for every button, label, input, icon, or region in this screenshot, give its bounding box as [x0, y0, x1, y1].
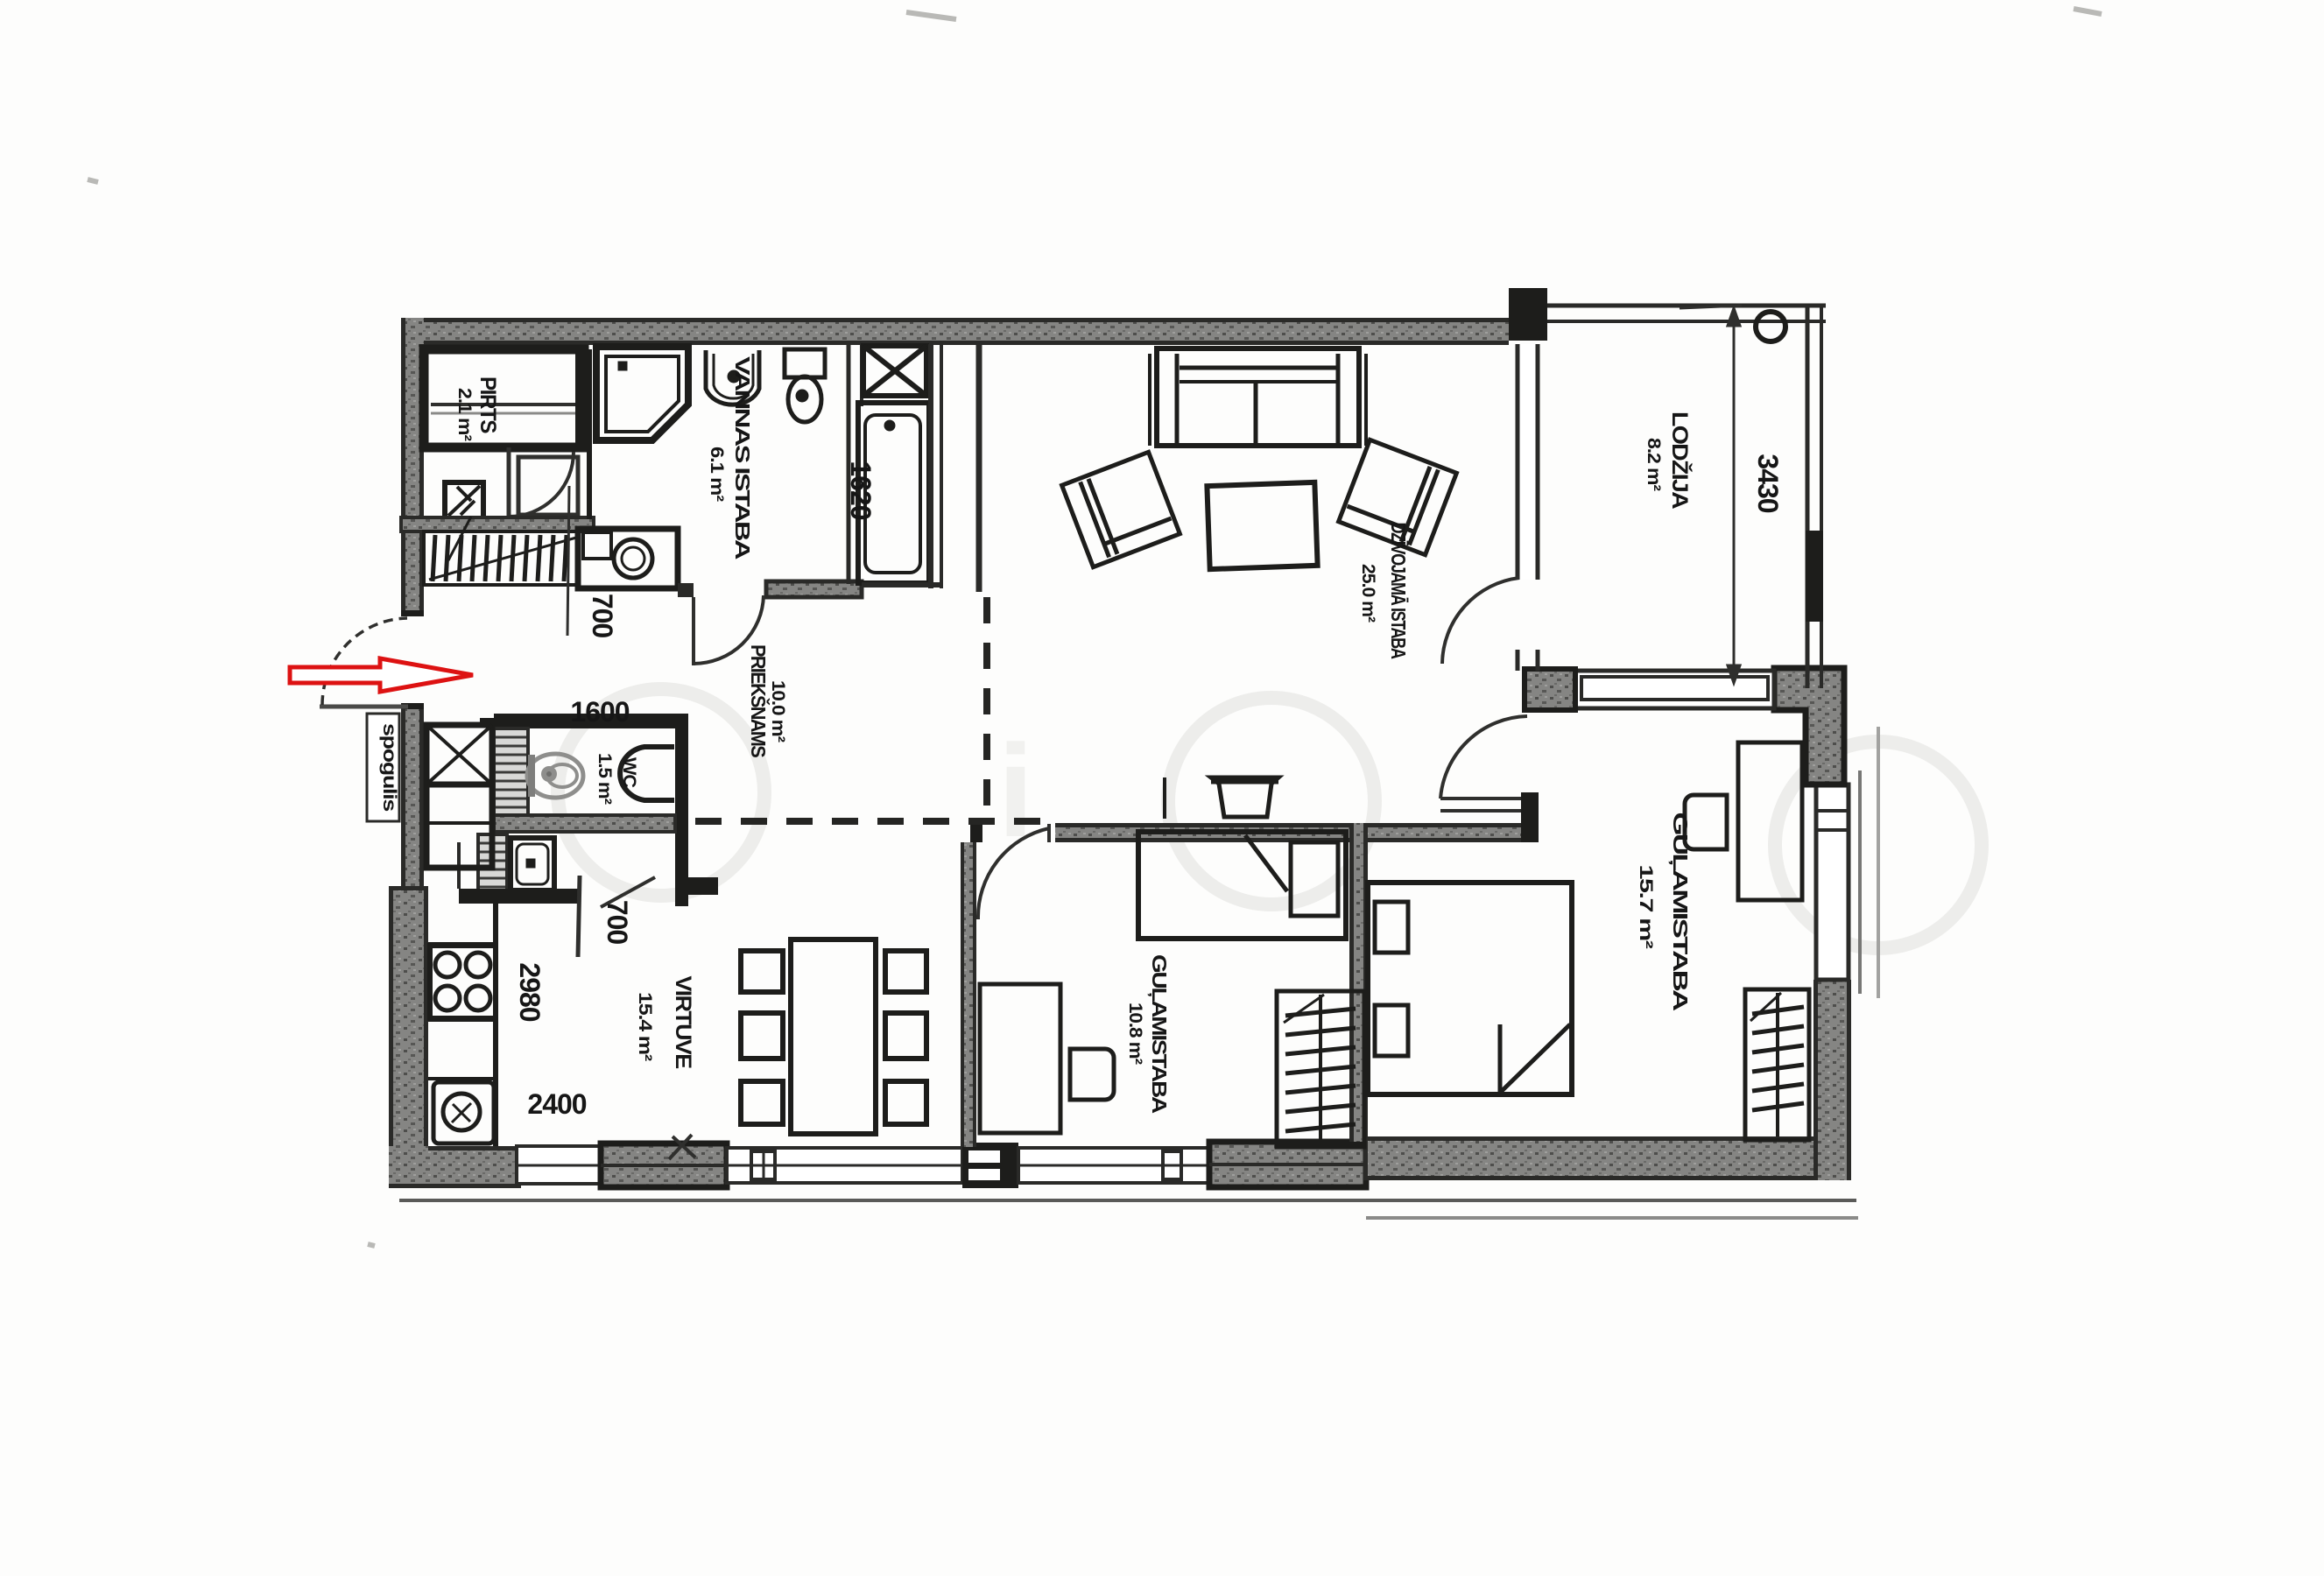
- svg-text:DZĪVOJAMĀ ISTABA: DZĪVOJAMĀ ISTABA: [1387, 523, 1410, 659]
- svg-text:6.1 m²: 6.1 m²: [707, 447, 727, 502]
- svg-text:VANNAS ISTABA: VANNAS ISTABA: [731, 356, 754, 559]
- svg-text:25.0 m²: 25.0 m²: [1358, 564, 1378, 623]
- svg-text:PIRTS: PIRTS: [475, 376, 500, 433]
- svg-text:2.1 m²: 2.1 m²: [454, 388, 475, 441]
- svg-text:spogulis: spogulis: [379, 723, 399, 811]
- svg-text:VIRTUVE: VIRTUVE: [671, 976, 695, 1069]
- svg-text:10.8 m²: 10.8 m²: [1125, 1003, 1145, 1065]
- svg-text:15.4 m²: 15.4 m²: [635, 992, 655, 1061]
- svg-text:700: 700: [602, 900, 633, 945]
- svg-text:1.5 m²: 1.5 m²: [595, 753, 615, 805]
- svg-text:PRIEKŠNAMS: PRIEKŠNAMS: [747, 644, 771, 757]
- svg-text:2980: 2980: [514, 962, 546, 1021]
- svg-text:8.2 m²: 8.2 m²: [1644, 438, 1664, 491]
- svg-text:10.0 m²: 10.0 m²: [768, 680, 788, 742]
- svg-text:1620: 1620: [845, 461, 877, 519]
- svg-text:LODŽIJA: LODŽIJA: [1667, 412, 1694, 510]
- svg-text:WC: WC: [619, 757, 639, 788]
- svg-text:1600: 1600: [570, 696, 629, 728]
- svg-text:15.7 m²: 15.7 m²: [1636, 865, 1656, 949]
- svg-text:700: 700: [587, 594, 618, 638]
- svg-text:3430: 3430: [1752, 454, 1784, 512]
- svg-text:2400: 2400: [527, 1088, 586, 1120]
- svg-text:GUĻAMISTABA: GUĻAMISTABA: [1669, 813, 1692, 1011]
- svg-text:GUĻAMISTABA: GUĻAMISTABA: [1148, 954, 1171, 1113]
